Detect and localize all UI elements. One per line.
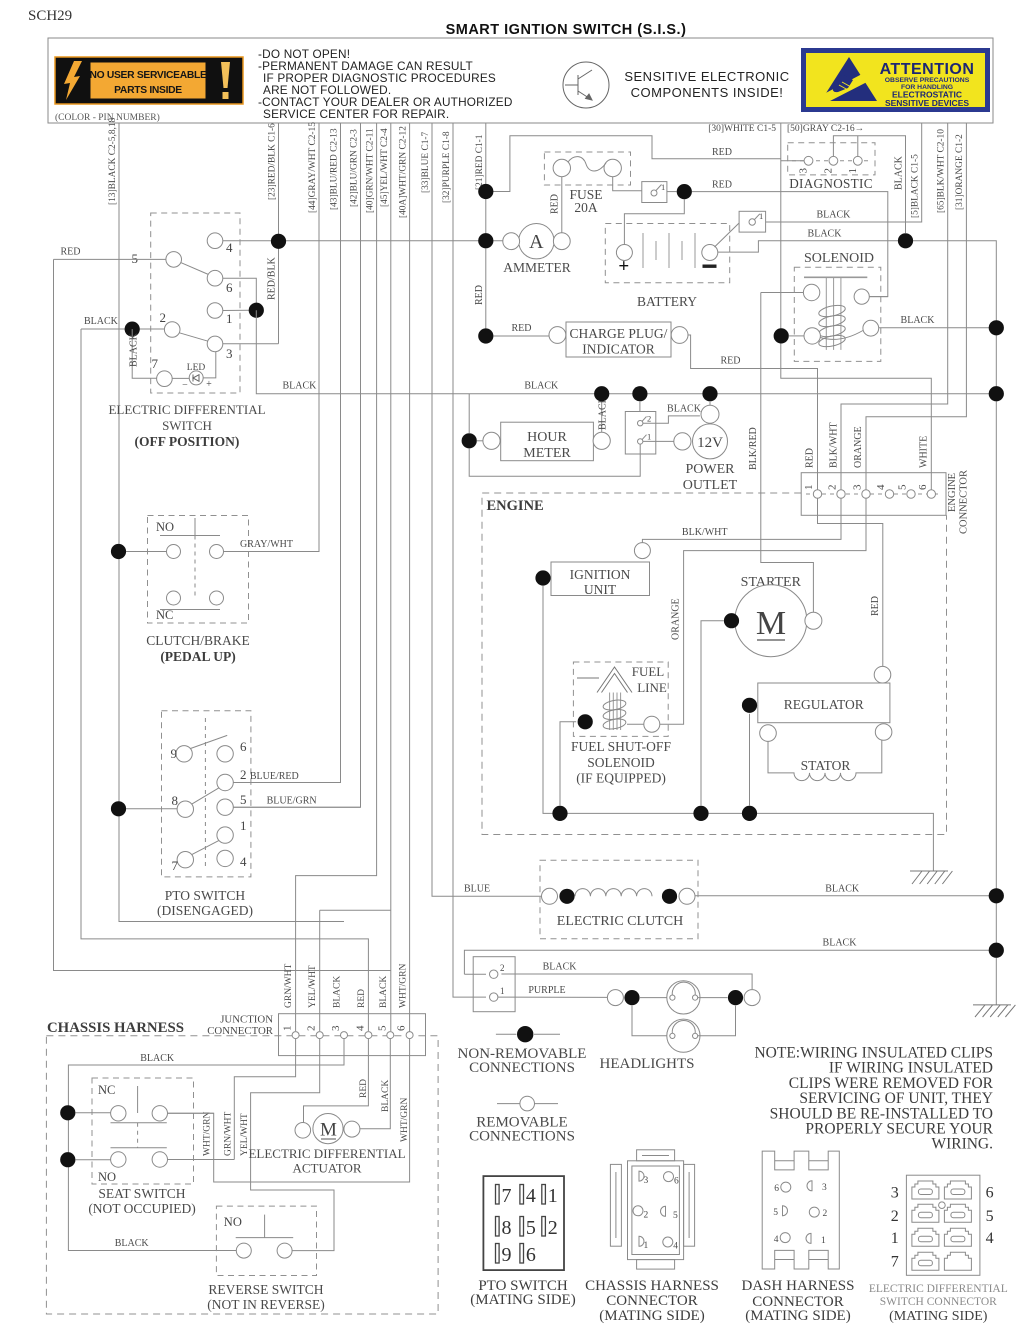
- svg-text:WHT/GRN: WHT/GRN: [400, 1098, 410, 1142]
- svg-text:AMMETER: AMMETER: [503, 260, 571, 275]
- svg-text:[50]GRAY C2-16→: [50]GRAY C2-16→: [787, 124, 864, 134]
- svg-text:WHT/GRN: WHT/GRN: [399, 964, 409, 1008]
- svg-text:SENSITIVE ELECTRONIC: SENSITIVE ELECTRONIC: [624, 69, 789, 84]
- svg-text:6: 6: [986, 1184, 994, 1201]
- svg-text:[65]BLK/WHT C2-10: [65]BLK/WHT C2-10: [937, 129, 947, 213]
- svg-text:RED: RED: [870, 596, 881, 616]
- svg-text:2: 2: [240, 767, 247, 782]
- svg-text:20A: 20A: [574, 200, 598, 215]
- svg-text:CONNECTOR: CONNECTOR: [959, 470, 970, 534]
- svg-text:[31]ORANGE C1-2: [31]ORANGE C1-2: [955, 134, 965, 210]
- svg-text:RED: RED: [712, 147, 732, 158]
- svg-text:NO: NO: [98, 1170, 116, 1184]
- svg-text:1: 1: [644, 1241, 649, 1251]
- svg-text:BATTERY: BATTERY: [637, 294, 697, 309]
- svg-text:RED: RED: [721, 356, 741, 367]
- svg-text:[13]BLACK C2-5,8,18: [13]BLACK C2-5,8,18: [108, 117, 118, 205]
- svg-text:1: 1: [282, 1026, 294, 1032]
- svg-text:RED: RED: [357, 989, 367, 1008]
- svg-text:DASH HARNESS: DASH HARNESS: [742, 1278, 855, 1294]
- svg-text:BLK/RED: BLK/RED: [748, 427, 759, 470]
- svg-text:7: 7: [152, 356, 159, 371]
- svg-text:HOUR: HOUR: [527, 430, 567, 445]
- svg-text:5: 5: [240, 792, 247, 807]
- svg-text:CHASSIS HARNESS: CHASSIS HARNESS: [47, 1020, 184, 1036]
- svg-text:ATTENTION: ATTENTION: [880, 61, 975, 78]
- svg-text:5: 5: [986, 1208, 994, 1225]
- svg-text:1: 1: [240, 818, 247, 833]
- svg-text:CONNECTOR: CONNECTOR: [207, 1025, 274, 1037]
- svg-text:[5]BLACK C1-5: [5]BLACK C1-5: [911, 154, 921, 218]
- svg-text:JUNCTION: JUNCTION: [220, 1014, 273, 1026]
- svg-text:6: 6: [240, 739, 247, 754]
- svg-text:BLACK: BLACK: [823, 938, 858, 949]
- svg-text:COMPONENTS INSIDE!: COMPONENTS INSIDE!: [631, 85, 784, 100]
- svg-text:BLACK: BLACK: [894, 155, 905, 190]
- svg-text:ACTUATOR: ACTUATOR: [292, 1161, 361, 1176]
- svg-text:BLACK: BLACK: [283, 381, 318, 392]
- svg-text:3: 3: [852, 484, 864, 490]
- svg-text:DIAGNOSTIC: DIAGNOSTIC: [789, 176, 873, 191]
- svg-text:1: 1: [821, 1236, 826, 1246]
- svg-text:[23]RED/BLK C1-6: [23]RED/BLK C1-6: [268, 123, 278, 200]
- svg-text:BLACK: BLACK: [140, 1053, 175, 1064]
- svg-text:BLUE/GRN: BLUE/GRN: [267, 796, 317, 807]
- svg-text:BLACK: BLACK: [543, 962, 578, 973]
- svg-text:5: 5: [673, 1211, 678, 1221]
- svg-text:SEAT SWITCH: SEAT SWITCH: [98, 1186, 185, 1201]
- svg-text:BLUE/RED: BLUE/RED: [250, 771, 299, 782]
- svg-text:FUEL: FUEL: [632, 664, 665, 679]
- svg-text:PURPLE: PURPLE: [528, 985, 565, 996]
- svg-text:(IF EQUIPPED): (IF EQUIPPED): [576, 771, 666, 786]
- svg-text:1: 1: [226, 311, 233, 326]
- svg-text:1: 1: [661, 182, 665, 192]
- svg-text:SOLENOID: SOLENOID: [587, 755, 655, 770]
- svg-text:LED: LED: [187, 363, 206, 373]
- svg-text:1: 1: [647, 432, 651, 442]
- svg-text:(PEDAL UP): (PEDAL UP): [160, 649, 235, 664]
- svg-text:SCH29: SCH29: [28, 8, 72, 24]
- svg-text:2: 2: [823, 1209, 828, 1219]
- svg-text:RED: RED: [61, 247, 81, 258]
- svg-text:(MATING SIDE): (MATING SIDE): [889, 1309, 988, 1324]
- svg-text:[40A]WHT/GRN C2-12: [40A]WHT/GRN C2-12: [399, 126, 409, 218]
- svg-text:CONNECTIONS: CONNECTIONS: [469, 1129, 575, 1145]
- svg-text:[43]BLU/RED C2-13: [43]BLU/RED C2-13: [330, 128, 340, 210]
- svg-text:2: 2: [500, 963, 505, 973]
- svg-text:SWITCH CONNECTOR: SWITCH CONNECTOR: [880, 1296, 997, 1308]
- svg-text:SMART IGNTION SWITCH (S.I.S.): SMART IGNTION SWITCH (S.I.S.): [446, 22, 687, 38]
- svg-text:BLACK: BLACK: [524, 381, 559, 392]
- svg-text:SENSITIVE DEVICES: SENSITIVE DEVICES: [885, 98, 969, 108]
- svg-text:2: 2: [823, 168, 835, 174]
- svg-text:NC: NC: [156, 608, 173, 622]
- svg-text:4: 4: [526, 1185, 536, 1207]
- svg-text:BLACK: BLACK: [825, 884, 860, 895]
- svg-text:IGNITION: IGNITION: [570, 567, 631, 582]
- svg-text:RED/BLK: RED/BLK: [267, 256, 278, 300]
- svg-text:RED: RED: [550, 194, 561, 214]
- svg-text:SOLENOID: SOLENOID: [804, 251, 874, 266]
- svg-text:2: 2: [891, 1208, 899, 1225]
- svg-text:(NOT OCCUPIED): (NOT OCCUPIED): [88, 1201, 195, 1216]
- svg-text:4: 4: [673, 1242, 678, 1252]
- svg-text:9: 9: [502, 1244, 512, 1266]
- svg-text:4: 4: [875, 484, 887, 490]
- svg-text:1: 1: [500, 986, 505, 996]
- svg-text:5: 5: [773, 1208, 778, 1218]
- svg-text:NO: NO: [156, 520, 174, 534]
- svg-text:ELECTRIC CLUTCH: ELECTRIC CLUTCH: [557, 914, 683, 929]
- svg-text:5: 5: [897, 484, 909, 490]
- svg-text:SWITCH: SWITCH: [162, 418, 212, 433]
- svg-text:4: 4: [240, 854, 247, 869]
- svg-text:WIRING.: WIRING.: [931, 1136, 993, 1153]
- svg-text:ORANGE: ORANGE: [853, 426, 864, 468]
- svg-text:UNIT: UNIT: [584, 582, 617, 597]
- svg-text:2: 2: [644, 1211, 649, 1221]
- svg-text:7: 7: [502, 1185, 512, 1207]
- svg-text:+: +: [618, 256, 629, 277]
- svg-text:2: 2: [647, 414, 651, 424]
- svg-text:REGULATOR: REGULATOR: [784, 697, 864, 712]
- svg-text:(MATING SIDE): (MATING SIDE): [599, 1308, 704, 1324]
- svg-text:OUTLET: OUTLET: [683, 478, 738, 493]
- svg-text:BLACK: BLACK: [84, 316, 119, 327]
- svg-text:(MATING SIDE): (MATING SIDE): [470, 1292, 575, 1308]
- svg-text:BLACK: BLACK: [381, 1080, 391, 1112]
- svg-text:6: 6: [774, 1184, 779, 1194]
- svg-text:(MATING SIDE): (MATING SIDE): [745, 1308, 850, 1324]
- svg-text:[42]BLU/GRN C2-3: [42]BLU/GRN C2-3: [350, 129, 360, 207]
- svg-text:+: +: [206, 379, 212, 390]
- svg-text:CONNECTIONS: CONNECTIONS: [469, 1060, 575, 1076]
- svg-text:WHITE: WHITE: [919, 436, 930, 468]
- svg-text:12V: 12V: [697, 435, 723, 451]
- svg-text:ELECTRIC DIFFERENTIAL: ELECTRIC DIFFERENTIAL: [869, 1283, 1008, 1295]
- svg-text:METER: METER: [523, 446, 571, 461]
- svg-text:HEADLIGHTS: HEADLIGHTS: [600, 1056, 695, 1072]
- svg-text:NO: NO: [224, 1215, 242, 1229]
- svg-text:7: 7: [891, 1254, 899, 1271]
- svg-text:1: 1: [891, 1230, 899, 1247]
- svg-text:6: 6: [226, 280, 233, 295]
- svg-text:ENGINE: ENGINE: [947, 473, 958, 512]
- svg-text:BLACK: BLACK: [379, 976, 389, 1008]
- svg-text:7: 7: [172, 858, 179, 873]
- svg-text:5: 5: [132, 251, 139, 266]
- svg-text:BLACK: BLACK: [115, 1238, 150, 1249]
- svg-text:2: 2: [827, 485, 839, 491]
- svg-text:2: 2: [306, 1026, 318, 1032]
- svg-text:[30]WHITE C1-5: [30]WHITE C1-5: [708, 124, 776, 134]
- svg-text:FUEL SHUT-OFF: FUEL SHUT-OFF: [571, 739, 671, 754]
- svg-text:8: 8: [172, 793, 179, 808]
- svg-text:BLK/WHT: BLK/WHT: [682, 527, 728, 538]
- svg-text:4: 4: [354, 1025, 366, 1031]
- svg-text:9: 9: [171, 746, 178, 761]
- svg-text:[45]YEL/WHT C2-4: [45]YEL/WHT C2-4: [380, 128, 390, 207]
- svg-text:ELECTRIC DIFFERENTIAL: ELECTRIC DIFFERENTIAL: [248, 1146, 405, 1161]
- svg-text:ENGINE: ENGINE: [487, 498, 544, 514]
- svg-text:3: 3: [644, 1176, 649, 1186]
- svg-text:SERVICE CENTER FOR REPAIR.: SERVICE CENTER FOR REPAIR.: [263, 107, 449, 121]
- svg-text:6: 6: [526, 1244, 536, 1266]
- svg-text:BLUE: BLUE: [464, 884, 490, 895]
- svg-text:PTO SWITCH: PTO SWITCH: [165, 888, 246, 903]
- svg-text:BLACK: BLACK: [667, 404, 702, 415]
- svg-text:BLACK: BLACK: [901, 315, 936, 326]
- svg-text:1: 1: [847, 168, 859, 174]
- svg-text:A: A: [529, 231, 544, 253]
- svg-text:INDICATOR: INDICATOR: [582, 342, 655, 357]
- svg-text:−: −: [182, 380, 188, 391]
- svg-text:(NOT IN REVERSE): (NOT IN REVERSE): [207, 1297, 325, 1312]
- svg-text:STATOR: STATOR: [801, 758, 851, 773]
- svg-text:3: 3: [822, 1183, 827, 1193]
- svg-text:CONNECTOR: CONNECTOR: [606, 1293, 697, 1309]
- svg-text:2: 2: [548, 1217, 558, 1239]
- svg-text:RED: RED: [359, 1079, 369, 1098]
- svg-text:1: 1: [803, 485, 815, 491]
- svg-text:3: 3: [330, 1025, 342, 1031]
- svg-text:BLK/WHT: BLK/WHT: [829, 422, 840, 468]
- svg-text:4: 4: [774, 1235, 779, 1245]
- svg-text:[21]RED C1-1: [21]RED C1-1: [475, 134, 485, 190]
- svg-text:8: 8: [502, 1217, 512, 1239]
- svg-text:1: 1: [548, 1185, 558, 1207]
- svg-text:CLUTCH/BRAKE: CLUTCH/BRAKE: [146, 633, 250, 648]
- svg-text:[44]GRAY/WHT C2-15: [44]GRAY/WHT C2-15: [308, 122, 318, 213]
- svg-text:CHASSIS HARNESS: CHASSIS HARNESS: [585, 1278, 719, 1294]
- svg-text:RED: RED: [512, 323, 532, 334]
- svg-text:BLACK: BLACK: [333, 976, 343, 1008]
- svg-text:(OFF POSITION): (OFF POSITION): [135, 434, 240, 449]
- svg-text:M: M: [756, 605, 786, 642]
- svg-text:POWER: POWER: [686, 462, 736, 477]
- svg-text:ORANGE: ORANGE: [671, 598, 682, 640]
- svg-text:3: 3: [226, 346, 233, 361]
- svg-text:6: 6: [674, 1177, 679, 1187]
- svg-text:(DISENGAGED): (DISENGAGED): [157, 903, 253, 918]
- svg-text:BLACK: BLACK: [129, 332, 140, 367]
- svg-text:[32]PURPLE C1-8: [32]PURPLE C1-8: [442, 131, 452, 203]
- svg-text:RED: RED: [805, 448, 816, 468]
- svg-text:RED: RED: [712, 180, 732, 191]
- svg-text:PARTS INSIDE: PARTS INSIDE: [114, 85, 182, 96]
- svg-text:5: 5: [376, 1025, 388, 1031]
- svg-text:ELECTRIC DIFFERENTIAL: ELECTRIC DIFFERENTIAL: [108, 402, 265, 417]
- svg-text:NC: NC: [98, 1083, 115, 1097]
- svg-text:GRN/WHT: GRN/WHT: [223, 1111, 233, 1156]
- svg-text:BLACK: BLACK: [816, 210, 851, 221]
- svg-text:6: 6: [396, 1025, 408, 1031]
- svg-text:[40]GRN/WHT C2-11: [40]GRN/WHT C2-11: [366, 128, 376, 213]
- svg-text:WHT/GRN: WHT/GRN: [203, 1112, 213, 1156]
- svg-text:CHARGE PLUG/: CHARGE PLUG/: [570, 326, 668, 341]
- svg-text:REVERSE SWITCH: REVERSE SWITCH: [208, 1282, 323, 1297]
- svg-text:4: 4: [986, 1230, 994, 1247]
- svg-text:1: 1: [759, 211, 763, 221]
- svg-text:LINE: LINE: [637, 680, 667, 695]
- svg-text:OBSERVE PRECAUTIONS: OBSERVE PRECAUTIONS: [885, 77, 970, 84]
- svg-text:4: 4: [226, 240, 233, 255]
- svg-text:BLACK: BLACK: [808, 229, 843, 240]
- svg-text:[33]BLUE C1-7: [33]BLUE C1-7: [421, 131, 431, 193]
- svg-text:2: 2: [160, 310, 167, 325]
- svg-text:3: 3: [798, 168, 810, 174]
- svg-text:YEL/WHT: YEL/WHT: [308, 965, 318, 1008]
- svg-text:NO USER SERVICEABLE: NO USER SERVICEABLE: [89, 70, 207, 81]
- svg-text:M: M: [320, 1120, 337, 1141]
- svg-text:6: 6: [917, 484, 929, 490]
- svg-text:GRAY/WHT: GRAY/WHT: [240, 539, 293, 550]
- svg-text:3: 3: [891, 1184, 899, 1201]
- svg-text:RED: RED: [474, 285, 485, 305]
- svg-text:GRN/WHT: GRN/WHT: [284, 963, 294, 1008]
- svg-text:5: 5: [526, 1217, 536, 1239]
